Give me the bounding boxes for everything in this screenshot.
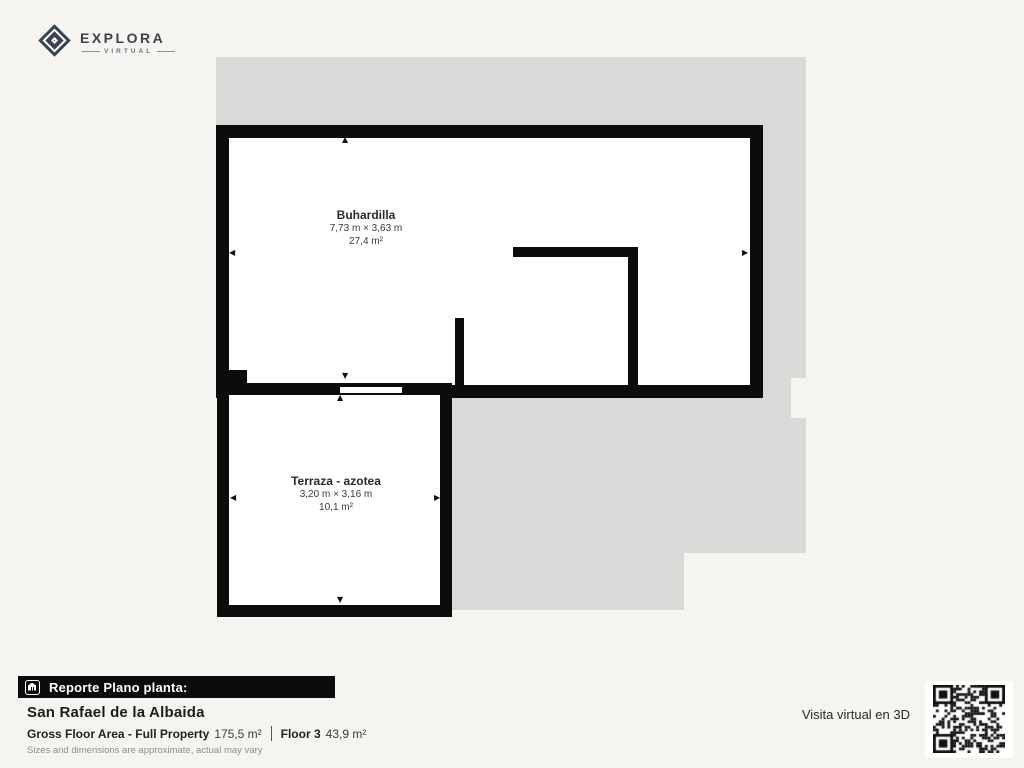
room-dimensions: 7,73 m × 3,63 m (266, 222, 466, 235)
floor-area-value: 43,9 m² (326, 727, 367, 741)
report-title-bar: Reporte Plano planta: (18, 676, 335, 698)
room-label-buhardilla: Buhardilla 7,73 m × 3,63 m 27,4 m² (266, 208, 466, 248)
arrow-up-icon: ▲ (342, 136, 348, 144)
room-label-terraza: Terraza - azotea 3,20 m × 3,16 m 10,1 m² (236, 474, 436, 514)
floor-label: Floor 3 (281, 727, 321, 741)
room-dimensions: 3,20 m × 3,16 m (236, 488, 436, 501)
wall-corner-stub (217, 370, 247, 385)
divider (271, 726, 272, 741)
floor-plan-report-page: EXPLORA VIRTUAL ▲ ▼ ◀ ▶ ▲ ▼ ◀ ▶ Buhardil… (0, 0, 1024, 768)
interior-wall-small (455, 318, 464, 393)
window-opening (340, 387, 402, 393)
interior-wall-vertical (628, 247, 638, 393)
qr-code (925, 681, 1013, 758)
interior-wall-horizontal (513, 247, 638, 257)
arrow-down-icon: ▼ (342, 372, 348, 380)
room-name: Buhardilla (266, 208, 466, 222)
area-info-line: Gross Floor Area - Full Property 175,5 m… (27, 726, 366, 741)
room-area: 27,4 m² (266, 235, 466, 248)
disclaimer-text: Sizes and dimensions are approximate, ac… (27, 745, 263, 756)
room-buhardilla (216, 125, 763, 398)
gross-area-value: 175,5 m² (214, 727, 261, 741)
gross-area-label: Gross Floor Area - Full Property (27, 727, 209, 741)
virtual-tour-caption: Visita virtual en 3D (760, 707, 910, 722)
qr-code-pattern (933, 685, 1005, 753)
arrow-right-icon: ▶ (742, 249, 748, 257)
building-icon (25, 680, 40, 695)
arrow-up-icon: ▲ (337, 394, 343, 402)
arrow-left-icon: ◀ (229, 249, 235, 257)
room-area: 10,1 m² (236, 501, 436, 514)
arrow-down-icon: ▼ (337, 596, 343, 604)
property-name: San Rafael de la Albaida (27, 704, 205, 721)
report-title: Reporte Plano planta: (49, 680, 188, 695)
room-name: Terraza - azotea (236, 474, 436, 488)
